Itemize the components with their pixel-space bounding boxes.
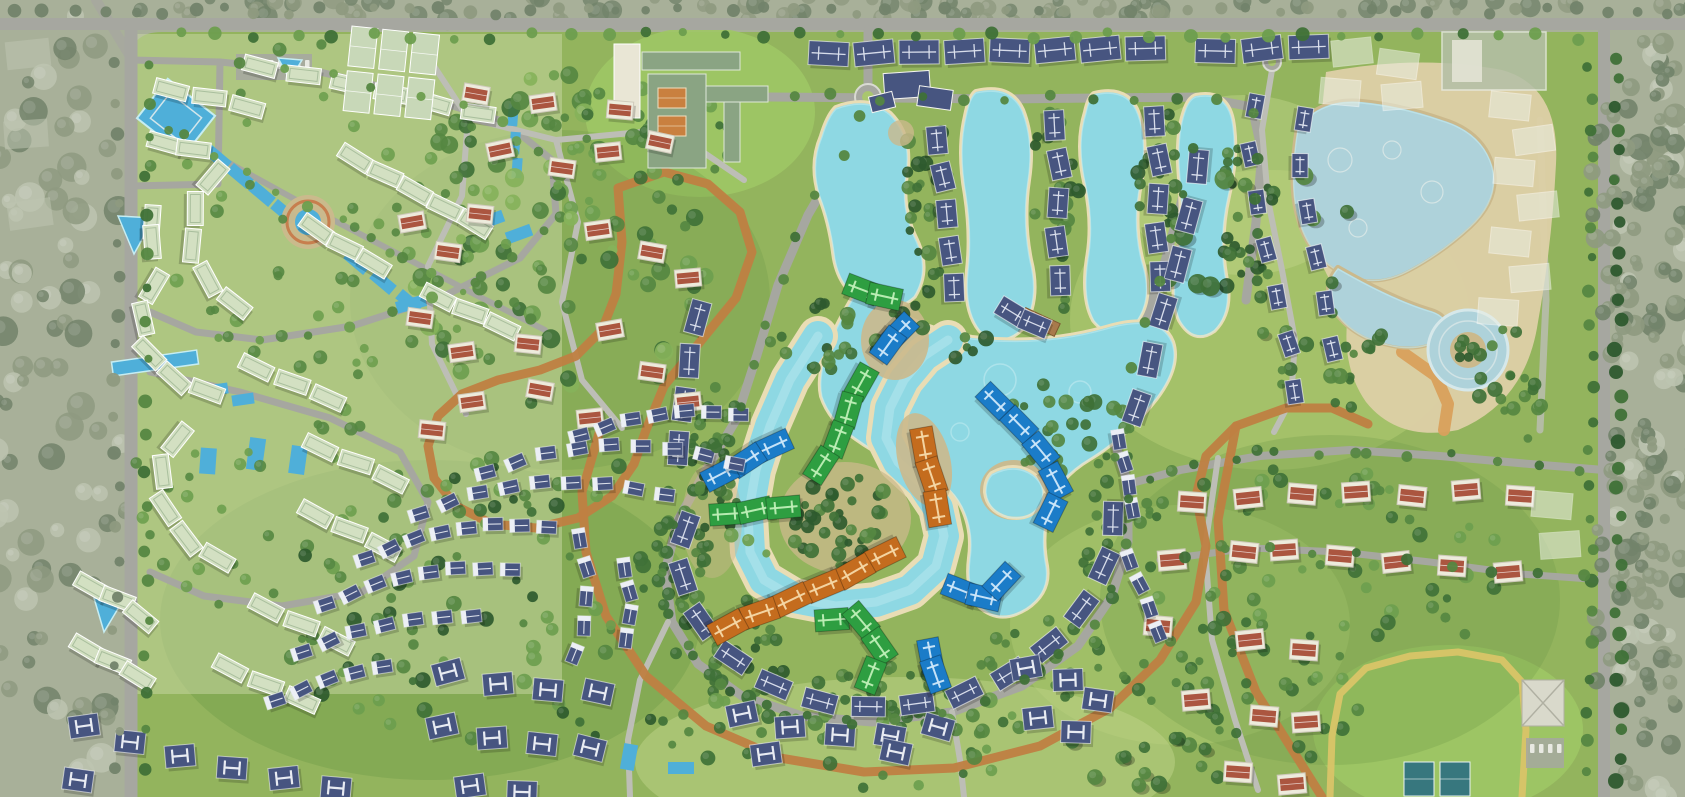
south-pool bbox=[668, 762, 694, 774]
waterpark-side-pool bbox=[1394, 318, 1418, 342]
ghost-court bbox=[3, 118, 49, 149]
masterplan-map bbox=[0, 0, 1685, 797]
school-roof-east-leg bbox=[724, 102, 740, 162]
lagoon-finger-2 bbox=[962, 90, 1034, 339]
shade-east-district bbox=[1100, 435, 1560, 765]
masterplan-canvas bbox=[0, 0, 1685, 797]
west-pool bbox=[199, 447, 217, 474]
ghost-court bbox=[5, 38, 52, 70]
island-pond bbox=[986, 468, 1043, 518]
school-roof-east-arm bbox=[706, 86, 768, 102]
school-roof-north bbox=[642, 52, 740, 70]
future-hall-core bbox=[1452, 40, 1482, 82]
clubhouse-deck bbox=[888, 120, 914, 146]
lagoon-finger-3 bbox=[1081, 92, 1147, 333]
